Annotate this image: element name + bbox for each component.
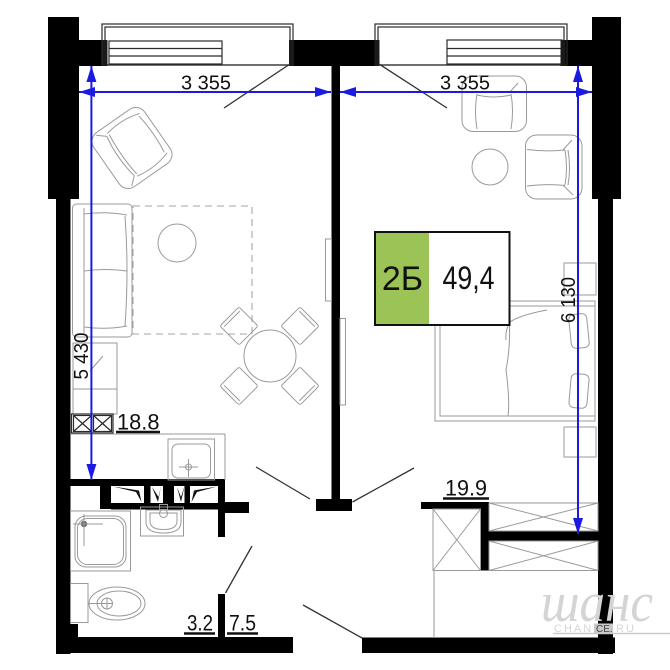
- svg-text:2Б: 2Б: [382, 260, 423, 298]
- svg-text:7.5: 7.5: [229, 611, 256, 636]
- svg-text:49,4: 49,4: [443, 260, 495, 296]
- svg-text:5 430: 5 430: [71, 333, 93, 380]
- svg-text:CE.: CE.: [596, 624, 613, 635]
- svg-text:CHAN: CHAN: [554, 623, 593, 635]
- svg-text:6 130: 6 130: [558, 277, 580, 323]
- svg-text:RU: RU: [616, 623, 636, 635]
- svg-text:3 355: 3 355: [181, 73, 231, 95]
- svg-text:3.2: 3.2: [187, 611, 213, 636]
- svg-text:3 355: 3 355: [440, 73, 490, 95]
- svg-text:19.9: 19.9: [445, 476, 487, 501]
